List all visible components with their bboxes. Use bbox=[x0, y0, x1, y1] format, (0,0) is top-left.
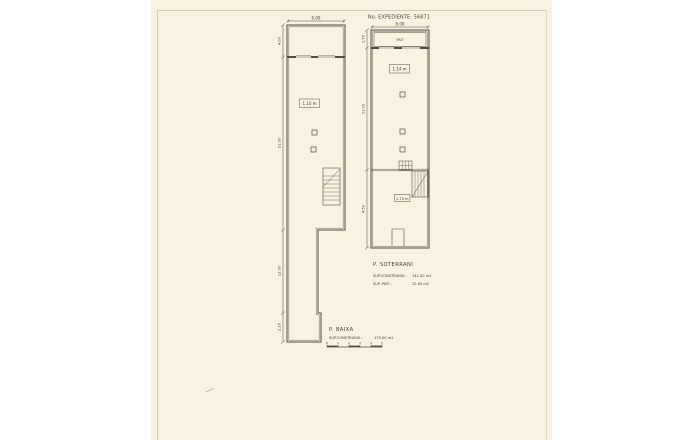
plan-title: P. SOTERRANI bbox=[373, 262, 413, 268]
sup-construida-label: SUP.CONSTRUIDA : bbox=[329, 336, 363, 340]
plan-soterrani-room-label-lower: 1.70 m bbox=[395, 195, 411, 202]
dim-label: 12.00 bbox=[278, 265, 282, 276]
dim-label: 2.20 bbox=[278, 322, 282, 331]
plan-soterrani-staircase bbox=[399, 161, 428, 197]
scale-tick: 3 bbox=[359, 341, 361, 345]
sup-pati-value: 12.00 m2 bbox=[412, 282, 429, 286]
sup-construida-value: 175.00 m2 bbox=[374, 336, 394, 340]
dim-label: 4.60 bbox=[278, 36, 282, 45]
scale-bar: 0 1 2 3 4 5 bbox=[326, 341, 383, 347]
plan-soterrani-bottom-recess bbox=[392, 229, 404, 246]
dim-label: 6.00 bbox=[312, 16, 321, 21]
dim-label: 6.00 bbox=[396, 22, 405, 27]
dim-label: 21.00 bbox=[278, 137, 282, 148]
floor-plan-drawing: 6.00 4.60 21.00 12.00 2.20 1.10 m bbox=[0, 0, 700, 440]
plan-soterrani: No. EXPEDIENTE: 56871 6.00 1.70 11.00 4.… bbox=[362, 15, 432, 287]
plan-baixa-room-label: 1.10 m bbox=[300, 99, 320, 108]
column bbox=[400, 129, 405, 134]
plan-soterrani-dim-left: 1.70 11.00 4.50 bbox=[362, 29, 370, 250]
dim-label: 4.50 bbox=[362, 204, 366, 213]
plan-soterrani-footer: P. SOTERRANI SUP.CONSTRUIDA : 141.00 m2 … bbox=[373, 262, 432, 286]
sup-construida-label: SUP.CONSTRUIDA : bbox=[373, 274, 407, 278]
column bbox=[312, 130, 317, 135]
dim-label: 1.70 bbox=[362, 34, 366, 43]
plan-baixa-facade-openings bbox=[287, 56, 345, 58]
plan-soterrani-facade-openings bbox=[371, 47, 429, 49]
column bbox=[400, 92, 405, 97]
expediente-number: No. EXPEDIENTE: 56871 bbox=[368, 15, 430, 21]
room-label-text: 1.70 m bbox=[396, 197, 409, 201]
scale-tick: 2 bbox=[348, 341, 350, 345]
column bbox=[311, 147, 316, 152]
sup-pati-label: SUP. PATI : bbox=[373, 282, 392, 286]
column bbox=[400, 147, 405, 152]
plan-baixa-footer: P. BAIXA SUP.CONSTRUIDA : 175.00 m2 bbox=[329, 327, 394, 340]
plan-baixa-staircase bbox=[323, 168, 340, 205]
plan-soterrani-room-label-upper: 1.14 m bbox=[390, 65, 410, 74]
plan-soterrani-wall-inner bbox=[373, 32, 427, 246]
room-label-text: 1.14 m bbox=[392, 67, 406, 72]
scale-tick: 4 bbox=[370, 341, 372, 345]
scale-tick: 1 bbox=[337, 341, 339, 345]
plan-title: P. BAIXA bbox=[329, 327, 354, 333]
room-label-text: 1.10 m bbox=[302, 101, 316, 106]
plan-soterrani-dim-top: 6.00 bbox=[371, 22, 430, 29]
plan-baixa-dim-top: 6.00 bbox=[287, 16, 346, 23]
patio-label: PATI bbox=[397, 38, 404, 42]
plan-baixa: 6.00 4.60 21.00 12.00 2.20 1.10 m bbox=[278, 16, 394, 348]
plan-soterrani-patio: PATI bbox=[374, 33, 426, 47]
stray-mark bbox=[206, 388, 214, 392]
plan-soterrani-wall-outline bbox=[371, 30, 429, 248]
sup-construida-value: 141.00 m2 bbox=[412, 274, 432, 278]
scale-tick: 5 bbox=[381, 341, 383, 345]
dim-label: 11.00 bbox=[362, 103, 366, 114]
plan-baixa-dim-left: 4.60 21.00 12.00 2.20 bbox=[278, 24, 286, 344]
plan-baixa-wall-inner bbox=[289, 27, 343, 340]
scale-tick: 0 bbox=[326, 341, 328, 345]
